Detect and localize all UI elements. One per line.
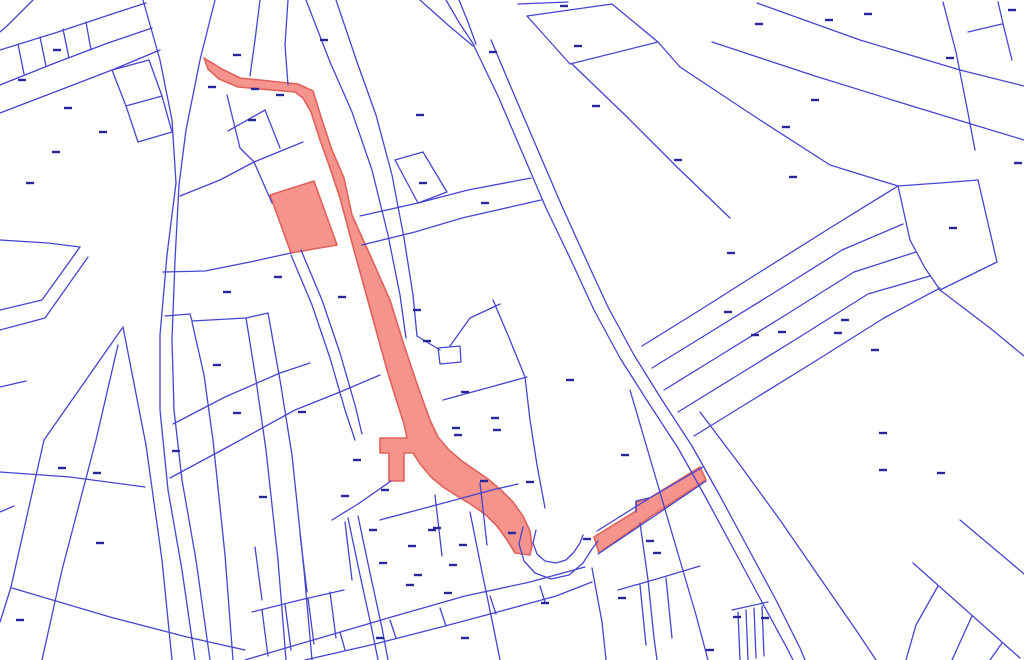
- parcel-boundary-line: [906, 586, 938, 660]
- parcel-boundary-line: [490, 596, 496, 614]
- parcel-boundary-line: [493, 300, 545, 508]
- parcel-boundary-line: [0, 327, 123, 622]
- parcel-boundary-line: [143, 0, 176, 183]
- parcel-boundary-line: [572, 64, 730, 218]
- parcel-boundary-line: [694, 288, 940, 436]
- parcel-boundary-line: [40, 37, 46, 66]
- parcel-boundary-line: [0, 3, 146, 50]
- parcel-boundary-line: [913, 563, 1020, 658]
- parcel-boundary-line: [943, 2, 975, 150]
- parcel-boundary-line: [254, 162, 272, 203]
- parcel-boundary-line: [250, 0, 260, 76]
- parcel-boundary-line: [170, 375, 380, 478]
- parcel-boundary-line: [173, 363, 310, 424]
- parcel-boundary-line: [491, 40, 805, 660]
- parcel-boundary-line: [0, 472, 145, 487]
- parcel-boundary-line: [0, 257, 88, 330]
- parcel-boundary-line: [180, 162, 254, 196]
- parcel-boundary-line: [332, 481, 391, 520]
- parcel-boundary-line: [640, 585, 646, 645]
- parcel-boundary-line: [640, 523, 657, 660]
- parcel-boundary-line: [952, 616, 972, 660]
- parcel-boundaries-layer: [0, 0, 1024, 660]
- parcel-boundary-line: [227, 95, 254, 162]
- parcel-boundary-line: [940, 290, 1024, 356]
- parcel-boundary-line: [712, 42, 1024, 140]
- parcel-boundary-line: [18, 44, 24, 74]
- parcel-boundary-line: [443, 377, 527, 400]
- parcel-boundary-line: [592, 568, 606, 660]
- highlighted-parcel: [270, 181, 337, 253]
- parcel-boundary-line: [126, 96, 172, 142]
- parcel-boundary-line: [960, 520, 1024, 574]
- parcel-boundary-line: [438, 346, 461, 364]
- parcel-boundary-line: [738, 612, 740, 660]
- parcel-boundary-line: [978, 180, 997, 262]
- parcel-boundary-line: [172, 185, 210, 660]
- parcel-boundary-line: [123, 327, 172, 660]
- parcel-boundary-line: [0, 28, 152, 85]
- parcel-boundary-line: [0, 247, 80, 310]
- parcel-boundary-line: [42, 345, 118, 660]
- highlighted-features-layer: [204, 58, 706, 555]
- parcel-boundary-line: [165, 313, 268, 321]
- parcel-boundary-line: [255, 547, 262, 600]
- parcel-boundary-line: [0, 506, 14, 512]
- parcel-boundary-line: [0, 381, 26, 387]
- parcel-boundary-line: [63, 29, 69, 58]
- parcel-boundary-line: [642, 186, 898, 346]
- parcel-boundary-line: [533, 530, 583, 563]
- parcel-boundary-line: [417, 336, 440, 350]
- parcel-boundary-line: [757, 3, 1024, 86]
- parcel-boundary-line: [285, 0, 288, 85]
- parcel-boundary-line: [163, 253, 291, 272]
- parcel-boundary-line: [440, 608, 446, 626]
- parcel-boundary-line: [762, 606, 764, 656]
- parcel-boundary-line: [192, 322, 233, 660]
- parcel-boundary-line: [86, 22, 91, 50]
- parcel-boundary-line: [990, 643, 1002, 660]
- parcel-boundary-line: [898, 180, 978, 186]
- parcel-boundary-line: [754, 608, 756, 658]
- map-canvas: [0, 0, 1024, 660]
- parcel-boundary-line: [395, 152, 447, 203]
- parcel-boundary-line: [420, 0, 473, 46]
- parcel-boundary-line: [330, 592, 336, 638]
- parcel-boundary-line: [179, 0, 215, 185]
- parcel-boundary-line: [940, 262, 997, 290]
- parcel-boundary-line: [301, 250, 362, 434]
- parcel-boundary-line: [666, 578, 672, 638]
- parcel-boundary-line: [245, 567, 585, 660]
- parcel-boundary-line: [968, 24, 1002, 32]
- parcel-boundary-line: [746, 610, 748, 660]
- parcel-boundary-line: [598, 481, 706, 554]
- cadastral-map-view[interactable]: [0, 0, 1024, 660]
- parcel-boundary-line: [340, 632, 345, 650]
- parcel-boundary-line: [450, 304, 500, 346]
- parcel-boundary-line: [285, 604, 291, 650]
- parcel-boundary-line: [262, 610, 268, 656]
- parcel-boundary-line: [390, 620, 396, 638]
- parcel-boundary-line: [300, 534, 307, 592]
- parcel-boundary-line: [265, 110, 280, 148]
- parcel-boundary-line: [459, 0, 476, 44]
- parcel-boundary-line: [898, 186, 940, 290]
- parcel-boundary-line: [527, 4, 658, 64]
- parcel-boundary-line: [360, 178, 531, 216]
- parcel-boundary-line: [0, 240, 80, 247]
- parcel-boundary-line: [518, 2, 568, 4]
- parcel-boundary-line: [678, 276, 930, 412]
- parcel-boundary-line: [0, 0, 33, 32]
- parcel-boundary-line: [658, 42, 680, 67]
- parcel-boundary-line: [446, 0, 474, 45]
- parcel-boundary-line: [470, 512, 500, 660]
- parcel-boundary-line: [362, 200, 541, 245]
